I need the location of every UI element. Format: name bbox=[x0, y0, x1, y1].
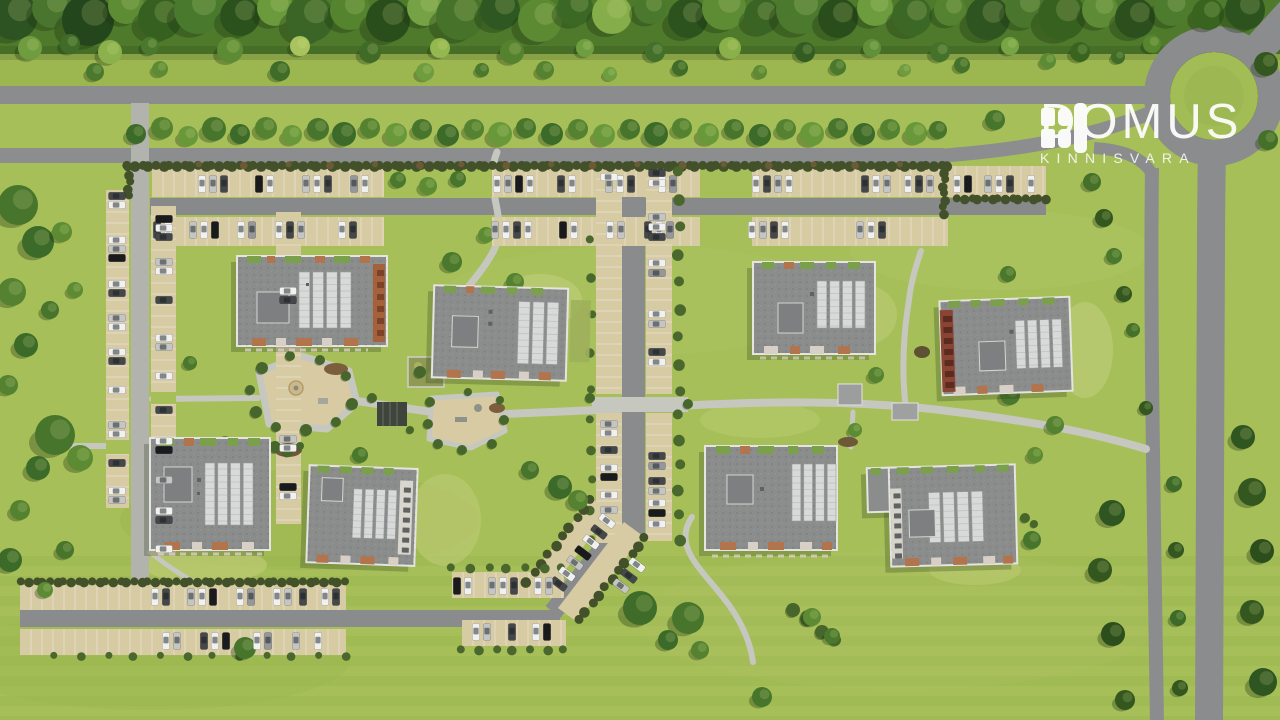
building-5 bbox=[144, 438, 270, 556]
building-7 bbox=[699, 446, 837, 556]
building-3 bbox=[747, 262, 875, 360]
building-6 bbox=[300, 465, 418, 572]
shed-b bbox=[892, 403, 918, 420]
building-1 bbox=[231, 256, 387, 352]
domus-logo: DOMUS KINNISVARA bbox=[1040, 98, 1242, 165]
road-east-vertical bbox=[1209, 140, 1212, 720]
aerial-site-plan: DOMUS KINNISVARA bbox=[0, 0, 1280, 720]
building-4 bbox=[933, 297, 1072, 402]
main-road-top bbox=[0, 86, 1168, 104]
domus-logo-icon bbox=[1040, 102, 1090, 154]
building-2 bbox=[426, 285, 592, 387]
pergola bbox=[377, 402, 407, 426]
shed-a bbox=[838, 384, 862, 405]
road-east-narrow bbox=[1151, 168, 1157, 720]
